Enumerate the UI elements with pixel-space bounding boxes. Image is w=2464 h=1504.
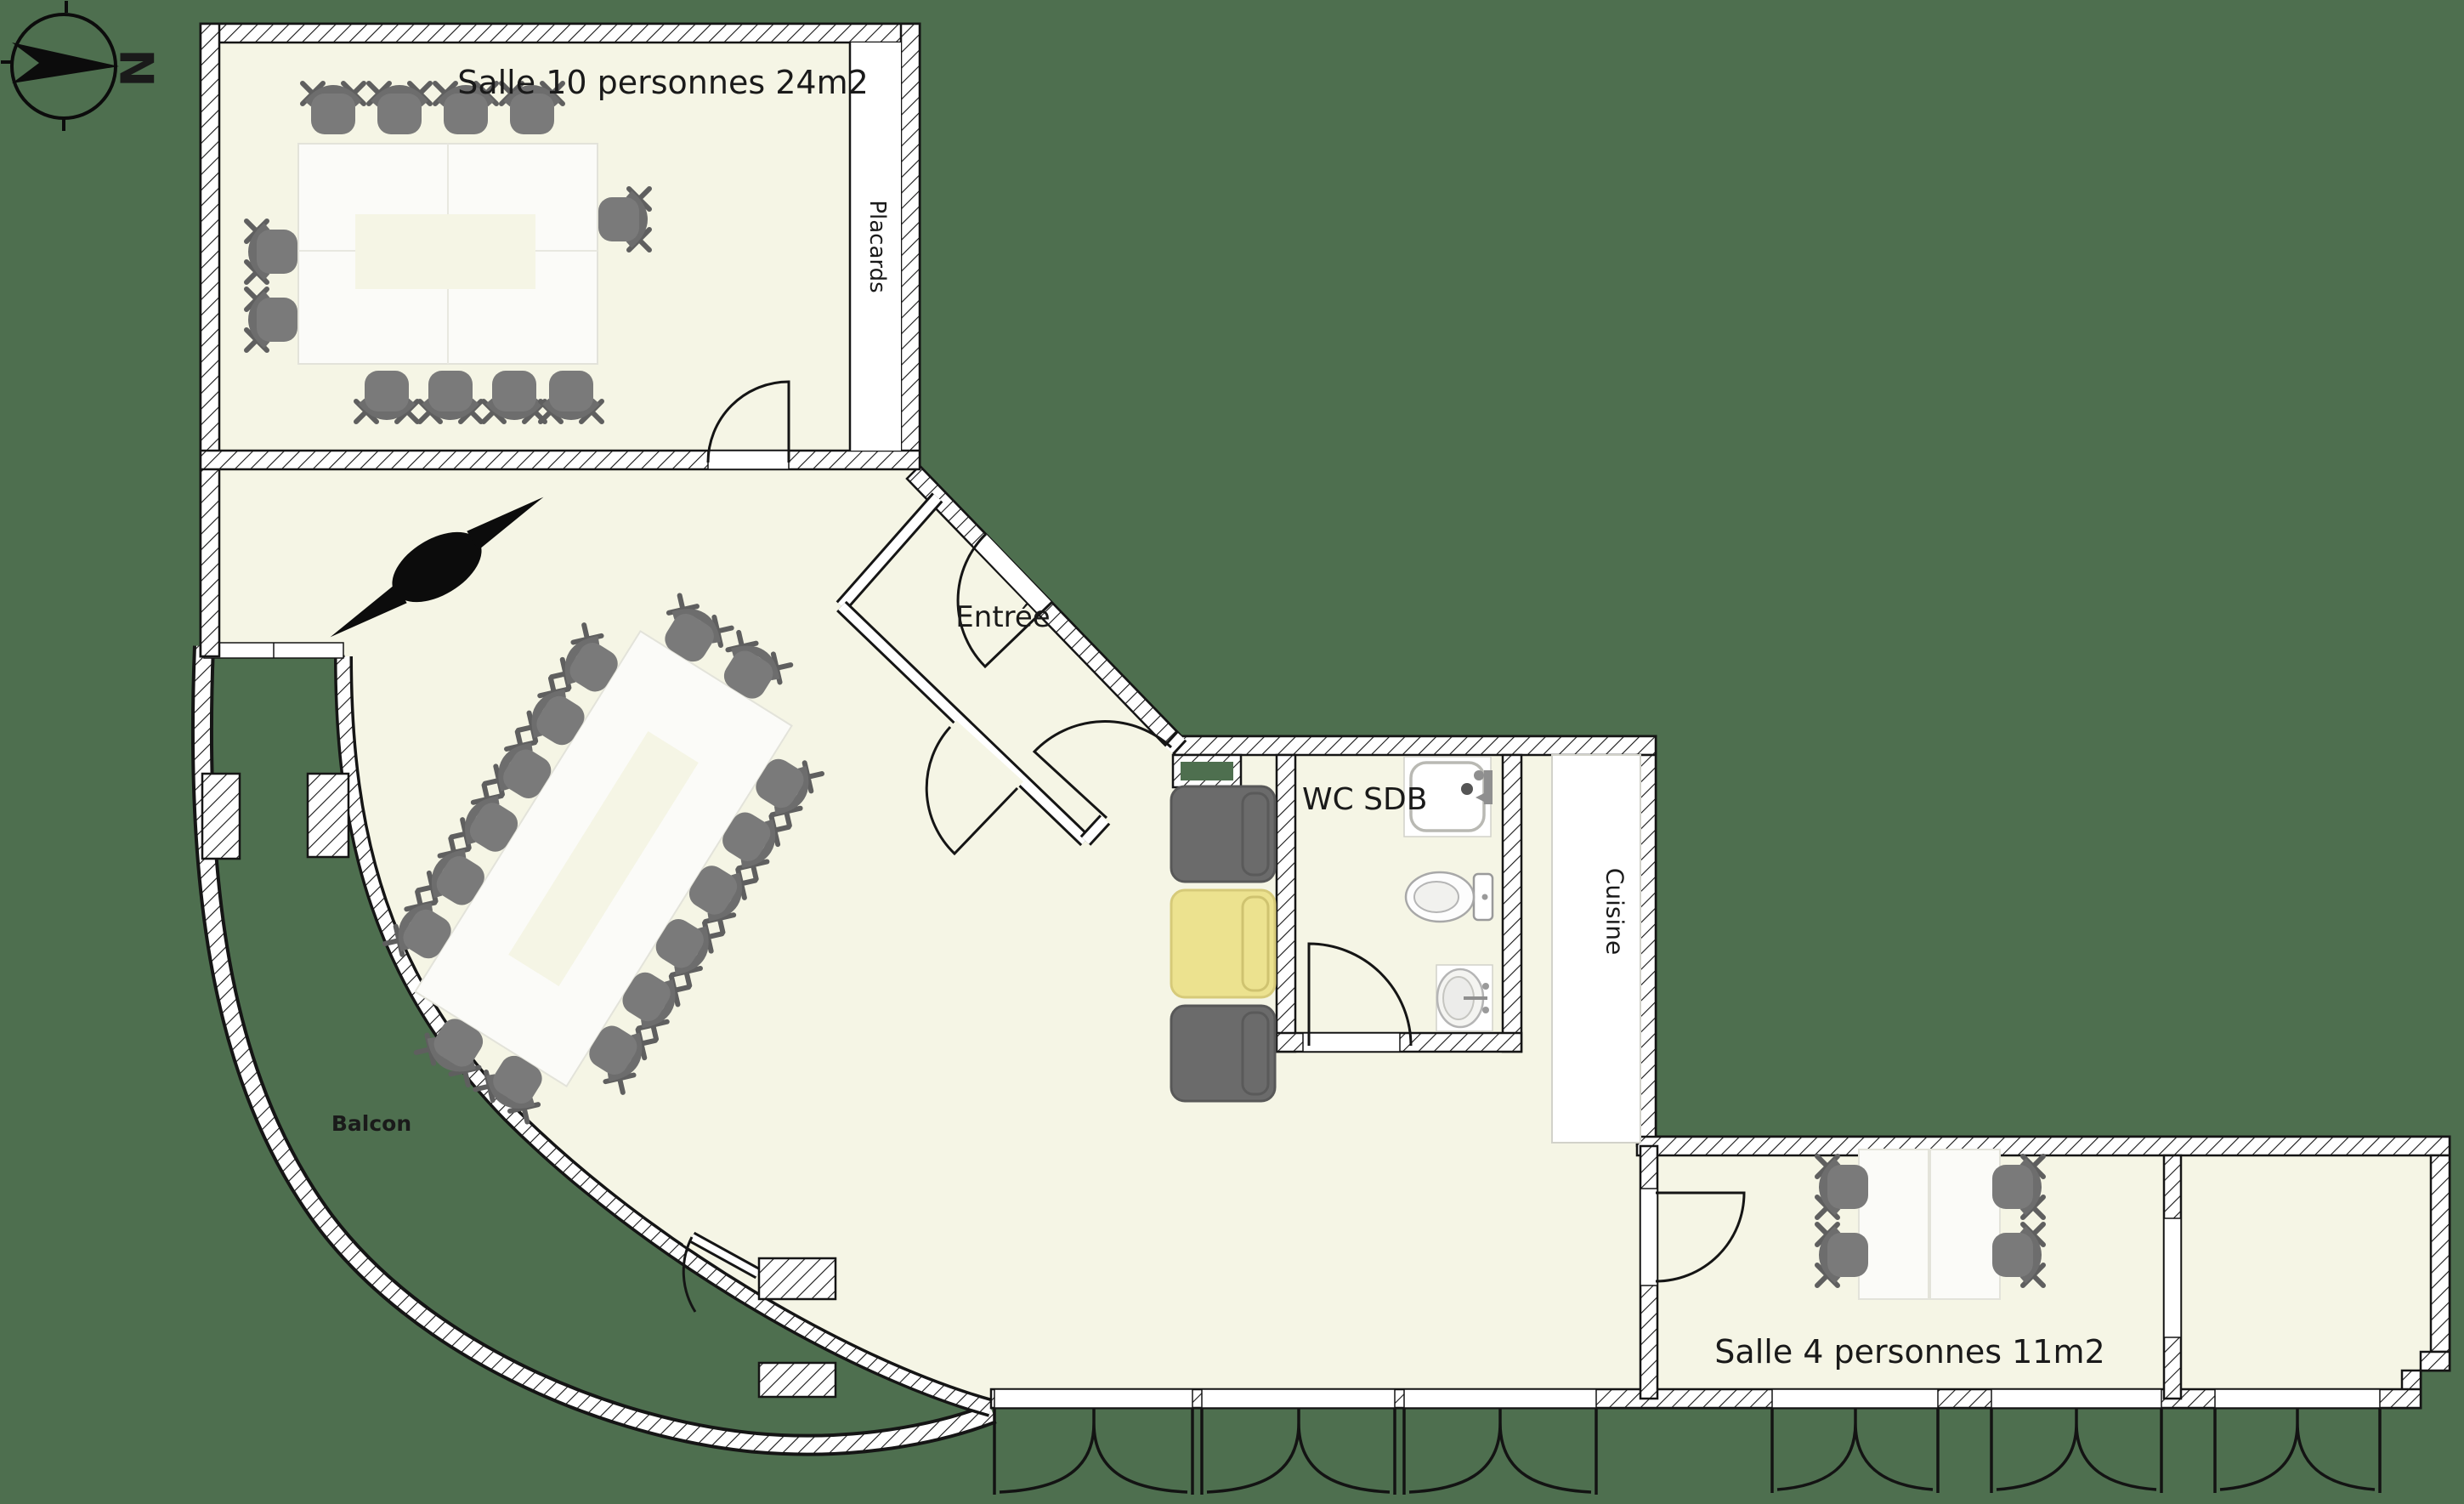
sofa-yellow: [1171, 890, 1275, 997]
sofa-dark-top: [1171, 786, 1275, 882]
french-door-window: [994, 1389, 1192, 1408]
sink: [1436, 965, 1493, 1031]
salle4-table: [1859, 1149, 2000, 1299]
balcony-pier: [759, 1363, 835, 1397]
balcony-pier: [759, 1258, 835, 1299]
room-label-balcon: Balcon: [331, 1111, 411, 1136]
toilet: [1406, 872, 1493, 922]
duct-shaft: [1173, 755, 1241, 787]
french-door-window: [1404, 1389, 1596, 1408]
sofa-dark-bottom: [1171, 1006, 1275, 1101]
french-door-window: [2215, 1389, 2380, 1408]
french-door-window: [1202, 1389, 1395, 1408]
balcony-pier: [308, 774, 348, 857]
room-label-entree: Entrée: [955, 600, 1050, 634]
room-label-wc: WC SDB: [1302, 782, 1427, 817]
french-door-window: [1772, 1389, 1938, 1408]
balcony-pier: [202, 774, 240, 859]
room-label-salle4: Salle 4 personnes 11m2: [1714, 1333, 2104, 1371]
room-label-placards: Placards: [864, 200, 890, 292]
balcony-window: [204, 643, 343, 658]
room-label-salle10: Salle 10 personnes 24m2: [457, 64, 869, 101]
french-door-window: [1991, 1389, 2161, 1408]
floor-plan: N Salle 10 personnes 24m2 Placards Entré…: [0, 0, 2464, 1504]
meeting-table-10: [298, 144, 598, 364]
room-label-cuisine: Cuisine: [1601, 868, 1629, 955]
north-label: N: [110, 48, 163, 87]
